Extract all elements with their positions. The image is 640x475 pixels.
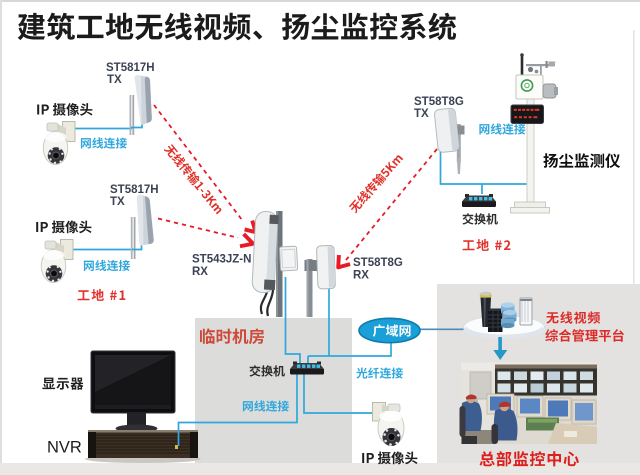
svg-text:ST5817H: ST5817H (106, 62, 155, 74)
svg-text:ST543JZ-N: ST543JZ-N (192, 254, 251, 266)
svg-text:RX: RX (353, 270, 369, 282)
svg-text:NVR: NVR (47, 439, 82, 457)
svg-text:ST58T8G: ST58T8G (353, 257, 403, 269)
svg-text:RX: RX (192, 266, 208, 278)
svg-text:TX: TX (414, 108, 429, 120)
svg-text:TX: TX (107, 74, 122, 86)
svg-text:ST58T8G: ST58T8G (414, 96, 464, 108)
svg-text:TX: TX (110, 196, 125, 208)
svg-text:ST5817H: ST5817H (110, 184, 159, 196)
